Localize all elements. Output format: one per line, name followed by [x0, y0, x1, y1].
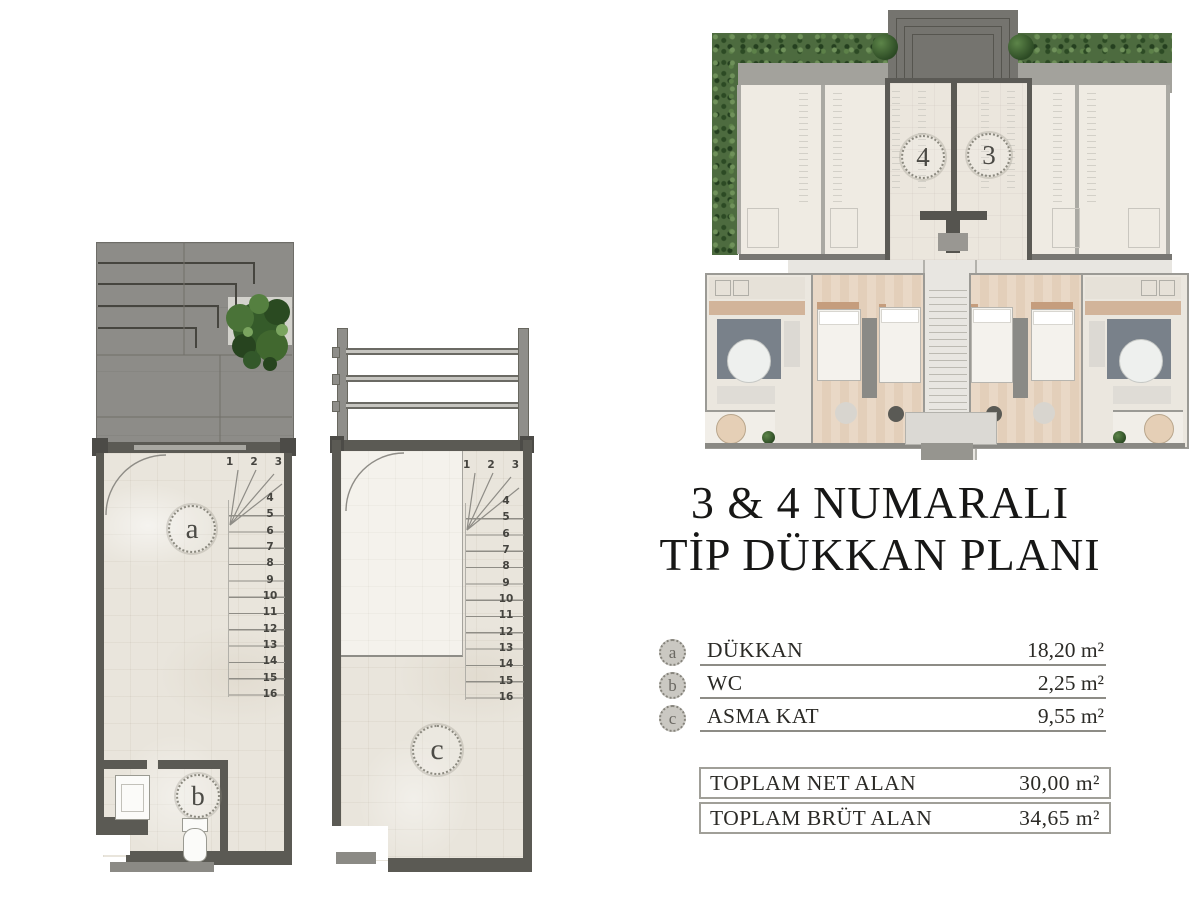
rug — [727, 339, 771, 383]
stair-number: 5 — [266, 508, 273, 520]
total-value: 30,00 m² — [1019, 771, 1100, 796]
legend-value: 2,25 m² — [1038, 671, 1104, 696]
stair-numbers-winder: 1 2 3 — [226, 456, 282, 468]
corner-bush — [872, 34, 898, 60]
toilet — [183, 828, 207, 862]
appliance — [1159, 280, 1175, 296]
stair-number: 15 — [499, 675, 514, 687]
pillow — [819, 311, 859, 325]
page-title: 3 & 4 NUMARALI TİP DÜKKAN PLANI — [600, 477, 1160, 581]
stair-number: 11 — [499, 609, 514, 621]
stair-number: 4 — [266, 492, 273, 504]
left-wall — [332, 440, 341, 830]
right-wall — [523, 440, 532, 872]
side-table — [1089, 321, 1105, 367]
roof-plant — [222, 288, 296, 374]
stair-number: 13 — [263, 639, 278, 651]
stair-number: 10 — [263, 590, 278, 602]
stair-number: 3 — [512, 459, 519, 471]
stair-number: 1 — [463, 459, 470, 471]
rug-dark — [888, 406, 904, 422]
bed-headboard — [817, 302, 859, 309]
wc-wall — [104, 760, 147, 769]
legend-label: WC — [707, 671, 743, 696]
legend-value: 18,20 m² — [1027, 638, 1104, 663]
unit-3-digit: 3 — [982, 140, 996, 171]
hedge-top-right — [1017, 33, 1172, 63]
railing-rail — [346, 402, 518, 409]
stair-number: 10 — [499, 593, 514, 605]
entry-step — [110, 862, 214, 872]
patio-table — [716, 414, 746, 444]
bottom-wall — [388, 858, 532, 872]
stair-number: 3 — [275, 456, 282, 468]
sink — [115, 775, 150, 820]
railing-rail — [346, 348, 518, 355]
stair-number: 7 — [266, 541, 273, 553]
faded-stair-marks — [799, 93, 808, 203]
wc-wall — [158, 760, 228, 769]
stair-number: 6 — [266, 525, 273, 537]
page-title-line2: TİP DÜKKAN PLANI — [600, 529, 1160, 581]
faded-stair-marks — [1087, 93, 1096, 203]
legend-key-c: c — [659, 705, 686, 732]
patio-table — [1144, 414, 1174, 444]
door-swing-arc — [104, 453, 174, 519]
right-wall — [284, 453, 292, 857]
stair-number: 13 — [499, 642, 514, 654]
top-wall — [332, 440, 532, 451]
desk — [709, 301, 805, 315]
room-label-c: c — [412, 725, 462, 775]
stair-numbers-winder: 1 2 3 — [463, 459, 519, 471]
rug — [1119, 339, 1163, 383]
stair-number: 16 — [499, 691, 514, 703]
entry-stub-step — [921, 443, 973, 460]
entry-door-gap — [96, 835, 130, 855]
railing-tick — [332, 347, 340, 358]
bed-headboard — [1031, 302, 1073, 309]
stair-number: 8 — [502, 560, 509, 572]
stair-number: 5 — [502, 511, 509, 523]
wardrobe — [862, 318, 877, 398]
rug — [835, 402, 857, 424]
unit-4-number: 4 — [901, 135, 945, 179]
faded-wc — [747, 208, 779, 248]
legend-row: a DÜKKAN 18,20 m² — [659, 637, 1106, 670]
total-value: 34,65 m² — [1019, 806, 1100, 831]
stair-number: 14 — [263, 655, 278, 667]
stair-number: 7 — [502, 544, 509, 556]
stair-number: 11 — [263, 606, 278, 618]
legend-key-a: a — [659, 639, 686, 666]
stair-marks — [892, 91, 900, 191]
unit-wall — [737, 85, 741, 254]
total-label: TOPLAM BRÜT ALAN — [710, 806, 932, 831]
legend-label: DÜKKAN — [707, 638, 803, 663]
door-swing-arc — [344, 451, 412, 517]
stair-number: 6 — [502, 528, 509, 540]
stair-number: 9 — [502, 577, 509, 589]
railing-post — [518, 328, 529, 448]
legend-rule — [700, 697, 1106, 699]
total-gross-row: TOPLAM BRÜT ALAN 34,65 m² — [699, 802, 1111, 834]
legend-row: c ASMA KAT 9,55 m² — [659, 703, 1106, 736]
stair-number: 1 — [226, 456, 233, 468]
faded-wc — [1128, 208, 1160, 248]
appliance — [1141, 280, 1157, 296]
site-key-plan: 4 3 — [700, 8, 1182, 460]
room-label-c-letter: c — [430, 733, 443, 767]
corner-step — [336, 852, 376, 864]
entrance-canopy-block — [888, 10, 1018, 86]
corner-bush — [1008, 34, 1034, 60]
legend-key-b: b — [659, 672, 686, 699]
appliance — [733, 280, 749, 296]
room-label-b: b — [176, 774, 220, 818]
stair-number: 15 — [263, 672, 278, 684]
faded-stair-marks — [1053, 93, 1062, 203]
legend-rule — [700, 730, 1106, 732]
appliance — [715, 280, 731, 296]
plan-sheet: 1 2 3 4 5 6 7 8 9 10 11 12 13 14 15 16 — [0, 0, 1200, 900]
total-label: TOPLAM NET ALAN — [710, 771, 916, 796]
railing-tick — [332, 374, 340, 385]
side-table — [784, 321, 800, 367]
stair-number: 14 — [499, 658, 514, 670]
room-label-b-letter: b — [191, 781, 205, 812]
stair-number: 9 — [266, 574, 273, 586]
legend-value: 9,55 m² — [1038, 704, 1104, 729]
stair-number: 8 — [266, 557, 273, 569]
total-net-row: TOPLAM NET ALAN 30,00 m² — [699, 767, 1111, 799]
unit-wall — [1166, 85, 1170, 254]
stair-numbers-run: 4 5 6 7 8 9 10 11 12 13 14 15 16 — [258, 492, 282, 700]
mezzanine-plan: 1 2 3 4 5 6 7 8 9 10 11 12 13 14 15 16 — [332, 328, 532, 882]
unit-wall — [821, 85, 825, 254]
ground-floor-plan: 1 2 3 4 5 6 7 8 9 10 11 12 13 14 15 16 — [96, 242, 292, 875]
faded-wc — [830, 208, 858, 248]
faded-stair-marks — [833, 93, 842, 203]
railing-tick — [332, 401, 340, 412]
entry-stub — [905, 412, 997, 445]
entry-landing — [938, 233, 968, 251]
stair-number: 2 — [487, 459, 494, 471]
pillow — [881, 309, 919, 323]
shopfront-window — [134, 445, 246, 450]
legend-row: b WC 2,25 m² — [659, 670, 1106, 703]
pillow — [973, 309, 1011, 323]
room-label-a: a — [168, 505, 216, 553]
stair-number: 2 — [250, 456, 257, 468]
left-wall — [96, 453, 104, 817]
wardrobe — [1013, 318, 1028, 398]
bench — [1113, 386, 1171, 404]
stair-number: 4 — [502, 495, 509, 507]
row-bottom-wall — [973, 443, 1185, 448]
highlighted-units-block: 4 3 — [885, 78, 1032, 268]
area-legend: a DÜKKAN 18,20 m² b WC 2,25 m² c ASMA KA… — [659, 637, 1106, 736]
legend-rule — [700, 664, 1106, 666]
stair-number: 16 — [263, 688, 278, 700]
page-title-line1: 3 & 4 NUMARALI — [600, 477, 1160, 529]
unit-3-number: 3 — [967, 133, 1011, 177]
unit-4-digit: 4 — [916, 142, 930, 173]
rug — [1033, 402, 1055, 424]
legend-label: ASMA KAT — [707, 704, 819, 729]
faded-wc — [1052, 208, 1080, 248]
hedge-left-column — [712, 33, 738, 255]
desk — [1085, 301, 1181, 315]
room-label-a-letter: a — [186, 513, 199, 546]
stair-marks — [1007, 91, 1015, 191]
stair-number: 12 — [499, 626, 514, 638]
bench — [717, 386, 775, 404]
hedge-top-left — [712, 33, 889, 63]
sink-basin — [121, 784, 144, 812]
stair-numbers-run: 4 5 6 7 8 9 10 11 12 13 14 15 16 — [494, 495, 518, 703]
wc-wall — [220, 760, 228, 855]
totals-table: TOPLAM NET ALAN 30,00 m² TOPLAM BRÜT ALA… — [699, 767, 1111, 837]
railing-post — [337, 328, 348, 448]
pillow — [1033, 311, 1073, 325]
railing-rail — [346, 375, 518, 382]
corridor-stairs — [929, 290, 967, 430]
row-bottom-wall — [705, 443, 923, 448]
stair-number: 12 — [263, 623, 278, 635]
